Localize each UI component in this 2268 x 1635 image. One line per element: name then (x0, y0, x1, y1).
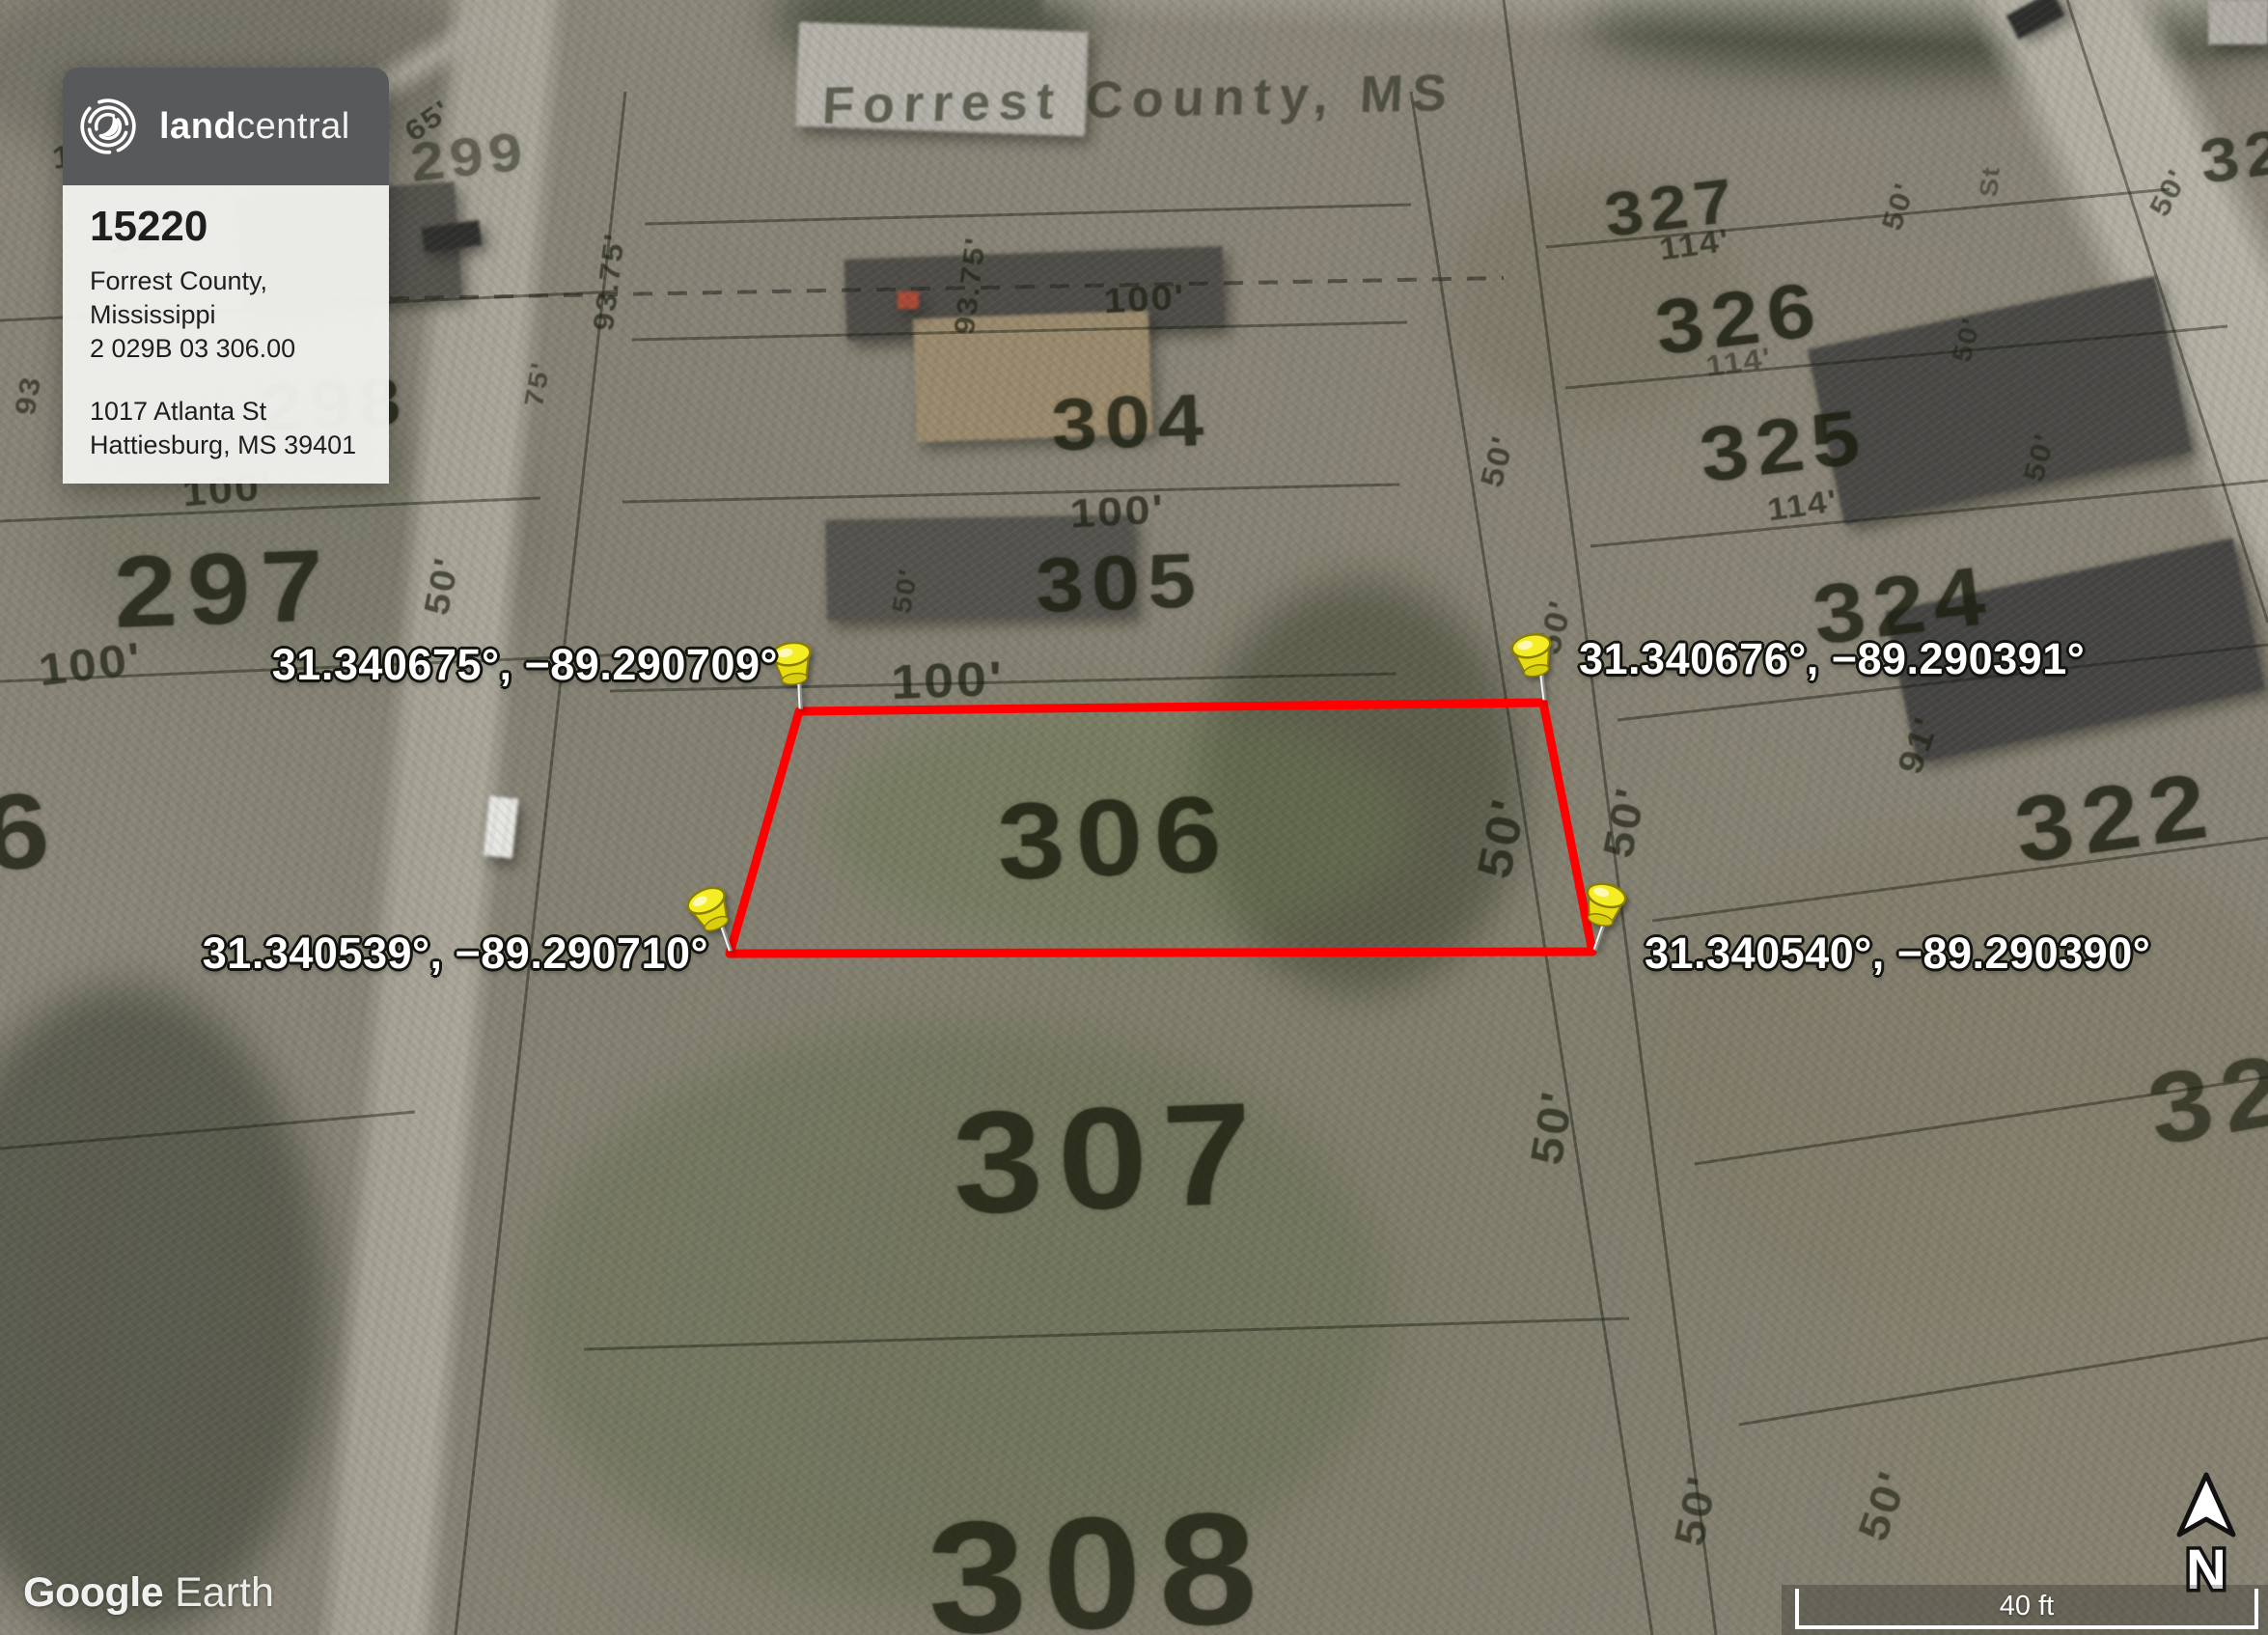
brand-name-bold: land (159, 106, 236, 147)
earth-logo-text: Earth (175, 1569, 274, 1616)
map-pushpin-icon[interactable] (1535, 850, 1650, 966)
pin-coordinate-label: 31.340675°, −89.290709° (272, 640, 778, 690)
scale-bar: 40 ft (1782, 1585, 2268, 1635)
listing-card-body: 15220 Forrest County, Mississippi 2 029B… (63, 185, 389, 484)
scale-bar-bracket: 40 ft (1795, 1589, 2258, 1629)
north-arrow-icon (2179, 1475, 2233, 1535)
brand-name-light: central (236, 106, 350, 147)
landcentral-swirl-icon (76, 95, 140, 158)
pin-coordinate-label: 31.340676°, −89.290391° (1579, 634, 2085, 684)
address-line1: 1017 Atlanta St (90, 395, 370, 429)
listing-card: landcentral 15220 Forrest County, Missis… (63, 68, 389, 484)
pin-coordinate-label: 31.340540°, −89.290390° (1645, 928, 2150, 979)
address-line2: Hattiesburg, MS 39401 (90, 429, 370, 462)
landcentral-header: landcentral (63, 68, 389, 185)
county-line: Forrest County, Mississippi (90, 264, 370, 332)
pin-coordinate-label: 31.340539°, −89.290710° (203, 928, 708, 979)
scale-bar-label: 40 ft (1799, 1591, 2254, 1622)
google-logo-text: Google (23, 1569, 163, 1616)
google-earth-watermark: GoogleEarth (23, 1569, 274, 1617)
parcel-306-outline (730, 703, 1592, 954)
listing-id: 15220 (90, 203, 370, 251)
crescent-shape (101, 116, 119, 137)
parcel-number: 2 029B 03 306.00 (90, 332, 370, 366)
google-earth-viewport[interactable]: 2992982976304305306307308327326325324322… (0, 0, 2268, 1635)
brand-wordmark: landcentral (159, 106, 350, 148)
